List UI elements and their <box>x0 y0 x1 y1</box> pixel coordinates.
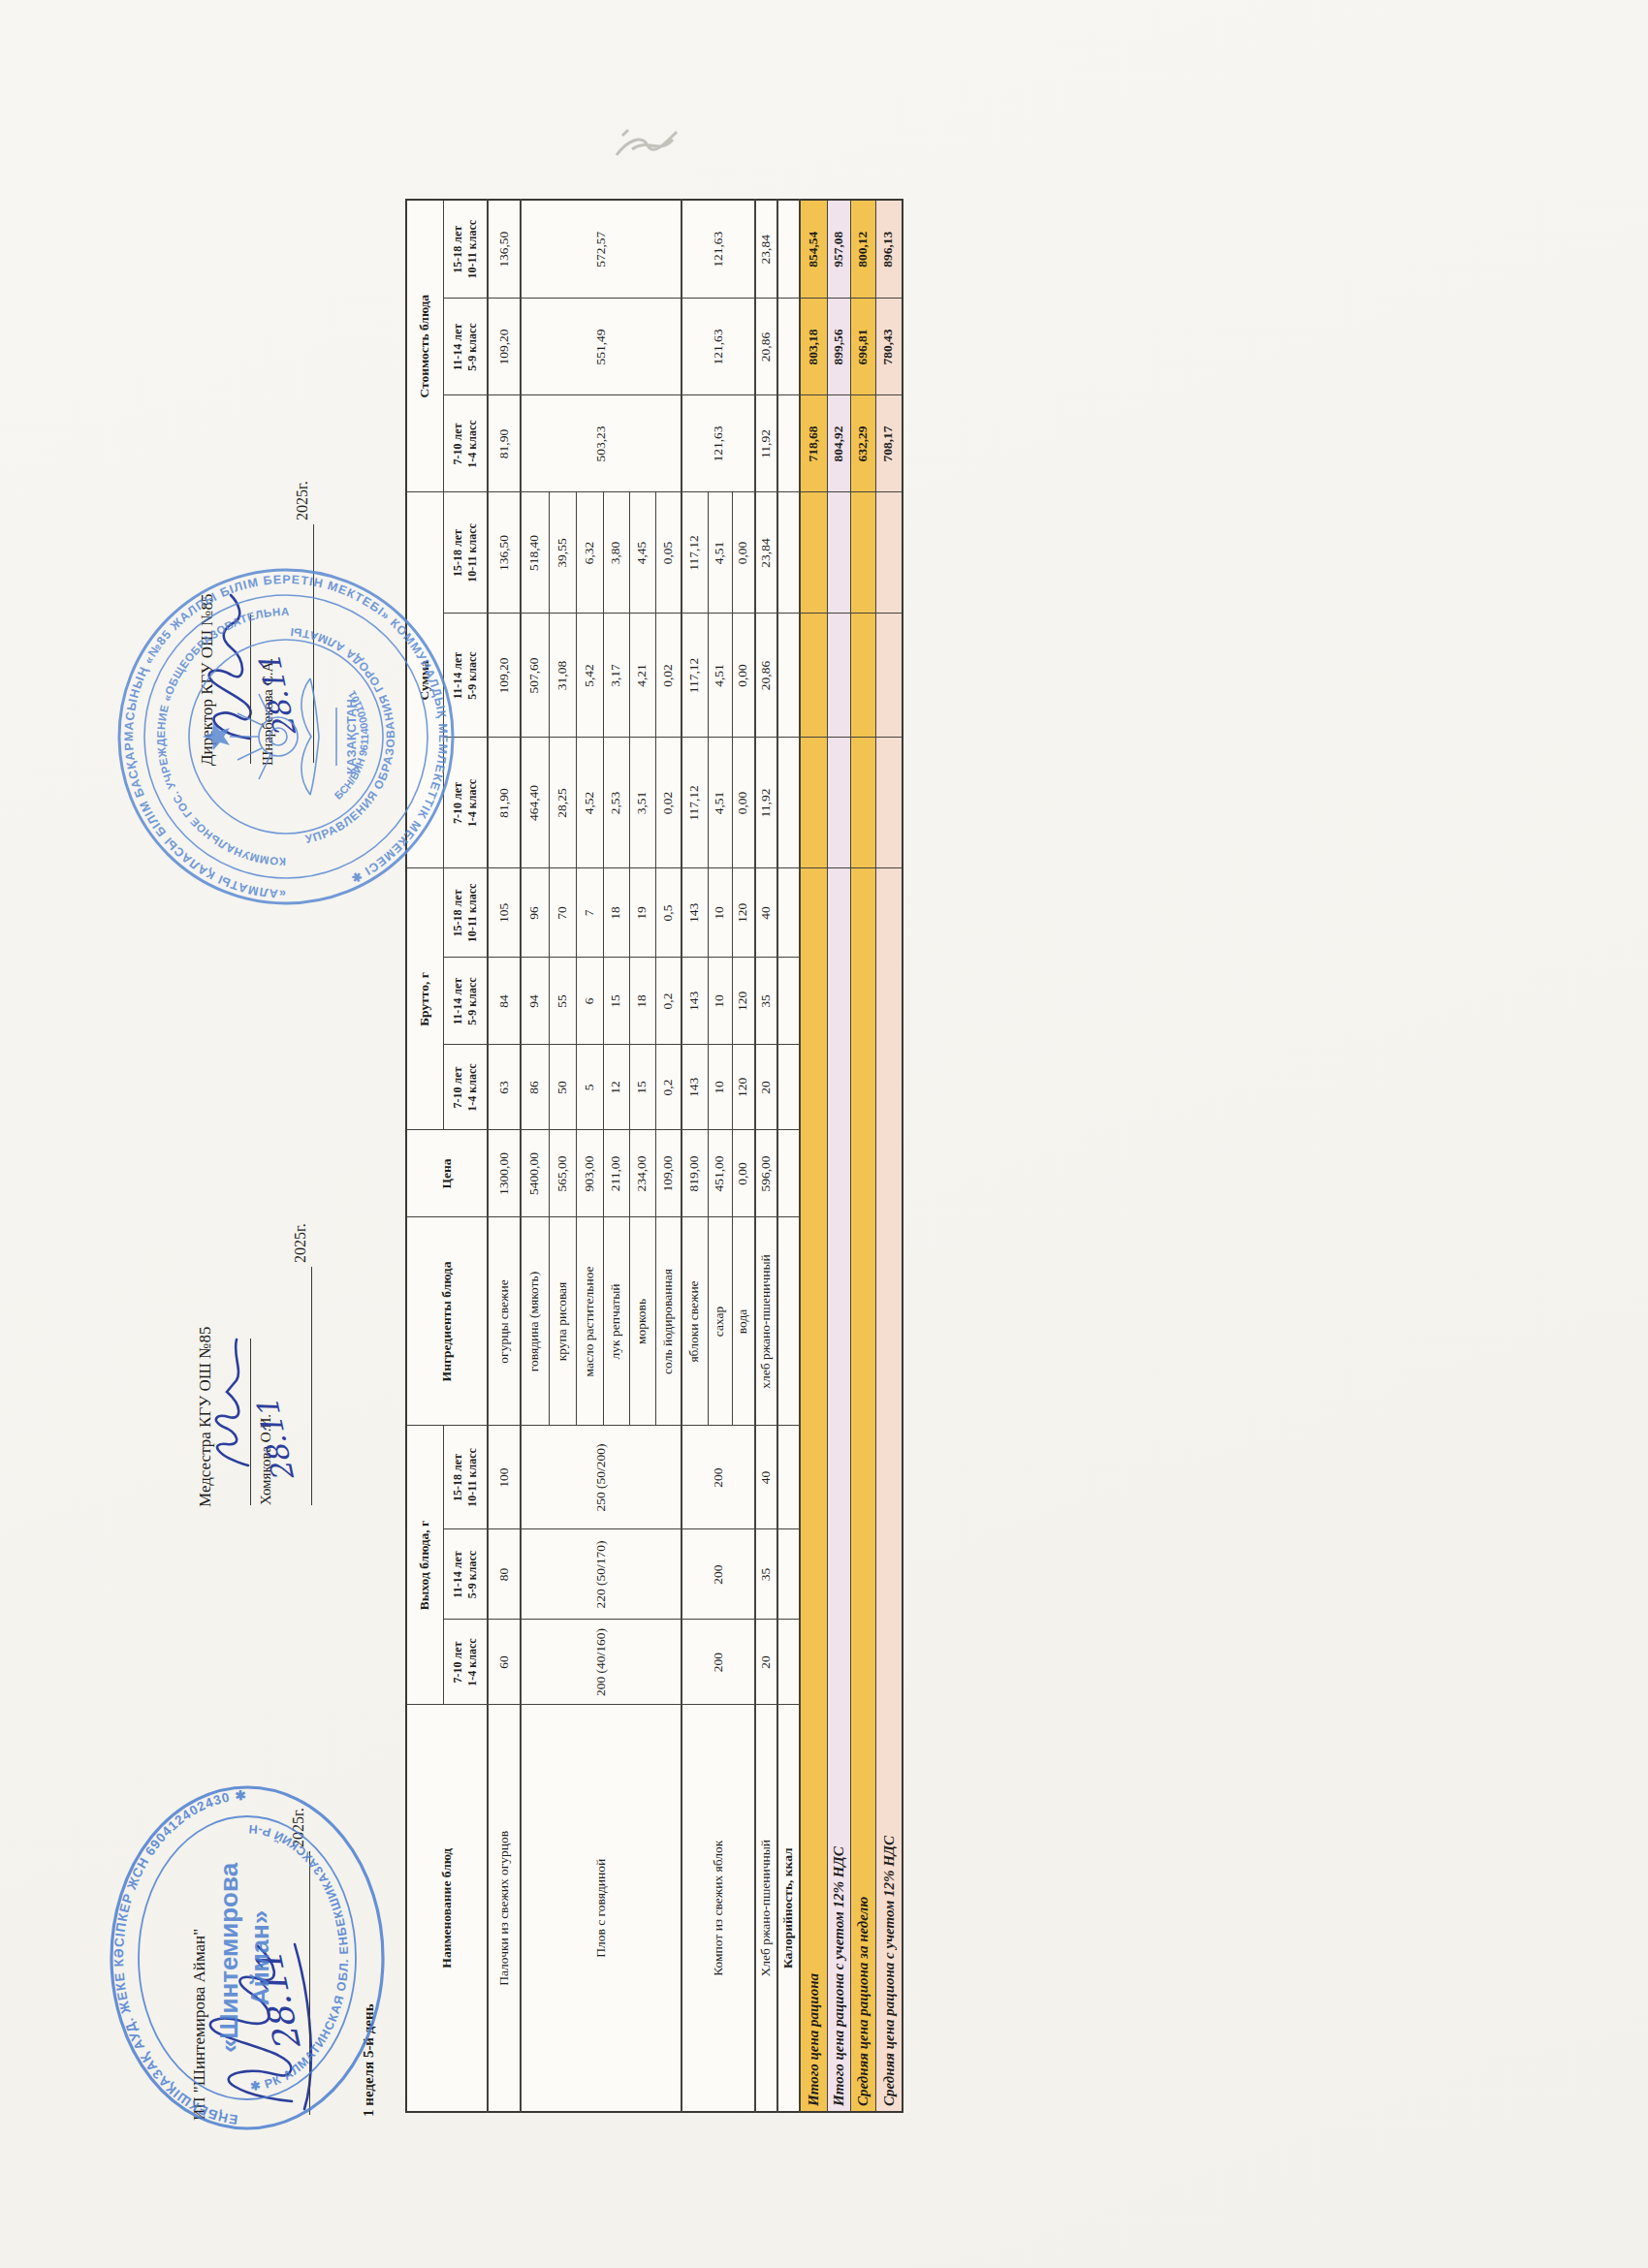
svg-text:«Шинтемирова: «Шинтемирова <box>214 1862 243 2053</box>
cell-empty <box>800 492 827 614</box>
header-out: Выход блюда, г <box>406 1426 443 1705</box>
row-plov-beef: Плов с говядиной 200 (40/160) 220 (50/17… <box>521 200 549 2112</box>
cell-out-3: 200 <box>681 1426 755 1529</box>
school-round-stamp: «АЛМАТЫ ҚАЛАСЫ БІЛІМ БАСҚАРМАСЫНЫҢ «№85 … <box>111 562 460 911</box>
cell-price: 211,00 <box>603 1130 629 1217</box>
cell-sum-2: 507,60 <box>521 614 549 738</box>
cell-sum-1: 0,02 <box>655 738 681 868</box>
cell-sum-1: 4,52 <box>576 738 603 868</box>
cell-sum-1: 2,53 <box>603 738 629 868</box>
cell-cost-3: 121,63 <box>681 200 755 299</box>
cell-empty <box>777 868 800 958</box>
cell-ingredient: яблоки свежие <box>681 1217 708 1426</box>
cell-empty <box>777 1620 800 1705</box>
cell-cost-3: 800,12 <box>850 200 875 299</box>
cell-sum-1: 464,40 <box>521 738 549 868</box>
cell-price: 0,00 <box>732 1130 755 1217</box>
header-age-out-2: 11-14 лет5-9 класс <box>443 1529 488 1620</box>
header-age-gross-1: 7-10 лет1-4 класс <box>443 1045 488 1130</box>
row-total-price-vat: Итого цена рациона с учетом 12% НДС 804,… <box>827 200 850 2112</box>
cell-empty <box>800 614 827 738</box>
cell-gross-3: 143 <box>681 868 708 958</box>
cell-sum-3: 6,32 <box>576 492 603 614</box>
cell-cost-3: 854,54 <box>800 200 827 299</box>
cell-empty <box>875 492 903 614</box>
cell-ingredient: сахар <box>708 1217 732 1426</box>
cell-gross-1: 120 <box>732 1045 755 1130</box>
cell-gross-2: 0,2 <box>655 958 681 1045</box>
cell-sum-3: 136,50 <box>488 492 521 614</box>
cell-price: 234,00 <box>629 1130 655 1217</box>
cell-ingredient: крупа рисовая <box>549 1217 576 1426</box>
cell-cost-1: 503,23 <box>521 395 681 492</box>
cell-cost-3: 572,57 <box>521 200 681 299</box>
cell-gross-1: 10 <box>708 1045 732 1130</box>
cell-cost-3: 23,84 <box>755 200 777 299</box>
cell-cost-2: 780,43 <box>875 299 903 395</box>
cell-sum-2: 31,08 <box>549 614 576 738</box>
cell-empty <box>777 200 800 299</box>
cell-gross-2: 55 <box>549 958 576 1045</box>
cell-dish: Хлеб ржано-пшеничный <box>755 1705 777 2112</box>
cell-dish: Плов с говядиной <box>521 1705 681 2112</box>
cell-cost-2: 696,81 <box>850 299 875 395</box>
cell-gross-3: 105 <box>488 868 521 958</box>
cell-sum-2: 0,02 <box>655 614 681 738</box>
cell-price: 451,00 <box>708 1130 732 1217</box>
cell-ingredient: огурцы свежие <box>488 1217 521 1426</box>
cell-dish: Палочки из свежих огурцов <box>488 1705 521 2112</box>
header-row-groups: Наименование блюд Выход блюда, г Ингреди… <box>406 200 443 2112</box>
cell-empty <box>777 1529 800 1620</box>
cell-cost-2: 551,49 <box>521 299 681 395</box>
cell-price: 903,00 <box>576 1130 603 1217</box>
cell-sum-2: 117,12 <box>681 614 708 738</box>
cell-dish: Калорийность, ккал <box>777 1705 800 2112</box>
cell-gross-1: 63 <box>488 1045 521 1130</box>
cell-sum-1: 3,51 <box>629 738 655 868</box>
row-average-week: Средняя цена рациона за неделю 632,29 69… <box>850 200 875 2112</box>
director-year: 2025г. <box>294 481 311 520</box>
cell-gross-3: 7 <box>576 868 603 958</box>
nurse-year: 2025г. <box>292 1223 309 1263</box>
ip-oval-stamp: ЕҢБЕКШІҚАЗАҚ АУД. ЖЕКЕ КӘСІПКЕР ЖСН 6904… <box>102 1779 393 2137</box>
cell-price: 5400,00 <box>521 1130 549 1217</box>
cell-cost-2: 20,86 <box>755 299 777 395</box>
cell-out-1: 200 (40/160) <box>521 1620 681 1705</box>
cell-gross-3: 10 <box>708 868 732 958</box>
cell-price: 109,00 <box>655 1130 681 1217</box>
header-age-out-3: 15-18 лет10-11 класс <box>443 1426 488 1529</box>
cell-gross-2: 15 <box>603 958 629 1045</box>
cell-ingredient: говядина (мякоть) <box>521 1217 549 1426</box>
cell-gross-1: 5 <box>576 1045 603 1130</box>
cell-gross-2: 84 <box>488 958 521 1045</box>
cell-sum-2: 5,42 <box>576 614 603 738</box>
cell-cost-1: 632,29 <box>850 395 875 492</box>
cell-price: 1300,00 <box>488 1130 521 1217</box>
cell-cost-3: 957,08 <box>827 200 850 299</box>
nurse-year-line <box>311 1267 312 1505</box>
cell-cost-1: 121,63 <box>681 395 755 492</box>
cell-sum-2: 4,51 <box>708 614 732 738</box>
cell-ingredient: лук репчатый <box>603 1217 629 1426</box>
cell-gross-1: 86 <box>521 1045 549 1130</box>
cell-price: 819,00 <box>681 1130 708 1217</box>
cell-sum-3: 0,05 <box>655 492 681 614</box>
cell-empty <box>777 1426 800 1529</box>
cell-ingredient: вода <box>732 1217 755 1426</box>
total-label: Средняя цена рациона за неделю <box>850 868 875 2112</box>
cell-empty <box>777 1130 800 1217</box>
cell-sum-2: 109,20 <box>488 614 521 738</box>
cell-cost-1: 708,17 <box>875 395 903 492</box>
emblem-icon <box>230 678 336 795</box>
cell-empty <box>777 1217 800 1426</box>
header-age-cost-3: 15-18 лет10-11 класс <box>443 200 488 299</box>
cell-sum-3: 0,00 <box>732 492 755 614</box>
cell-sum-1: 4,51 <box>708 738 732 868</box>
cell-gross-3: 0,5 <box>655 868 681 958</box>
cell-sum-3: 518,40 <box>521 492 549 614</box>
cell-empty <box>827 492 850 614</box>
cell-empty <box>777 299 800 395</box>
cell-empty <box>777 614 800 738</box>
row-total-price: Итого цена рациона 718,68 803,18 854,54 <box>800 200 827 2112</box>
cell-empty <box>827 738 850 868</box>
cell-out-3: 250 (50/200) <box>521 1426 681 1529</box>
rotated-content: 1 неделя 5-й день Наименование блюд Выхо… <box>405 201 909 2113</box>
cell-out-2: 35 <box>755 1529 777 1620</box>
scanned-page: 1 неделя 5-й день Наименование блюд Выхо… <box>0 0 1648 2268</box>
cell-cost-1: 804,92 <box>827 395 850 492</box>
cell-sum-3: 4,51 <box>708 492 732 614</box>
cell-price: 565,00 <box>549 1130 576 1217</box>
cell-empty <box>777 492 800 614</box>
cell-ingredient: морковь <box>629 1217 655 1426</box>
cell-ingredient: масло растительное <box>576 1217 603 1426</box>
cell-sum-1: 0,00 <box>732 738 755 868</box>
row-calories: Калорийность, ккал <box>777 200 800 2112</box>
cell-sum-2: 3,17 <box>603 614 629 738</box>
cell-cost-3: 896,13 <box>875 200 903 299</box>
cell-empty <box>850 738 875 868</box>
cell-sum-2: 0,00 <box>732 614 755 738</box>
header-age-gross-2: 11-14 лет5-9 класс <box>443 958 488 1045</box>
cell-empty <box>875 614 903 738</box>
cell-gross-2: 94 <box>521 958 549 1045</box>
cell-empty <box>800 738 827 868</box>
cell-cost-3: 136,50 <box>488 200 521 299</box>
cell-empty <box>850 492 875 614</box>
cell-sum-2: 20,86 <box>755 614 777 738</box>
cell-price: 596,00 <box>755 1130 777 1217</box>
cell-sum-1: 117,12 <box>681 738 708 868</box>
cell-cost-1: 11,92 <box>755 395 777 492</box>
cell-sum-2: 4,21 <box>629 614 655 738</box>
cell-gross-3: 96 <box>521 868 549 958</box>
cell-empty <box>850 614 875 738</box>
cell-cost-1: 81,90 <box>488 395 521 492</box>
cell-cost-2: 803,18 <box>800 299 827 395</box>
header-cost: Стоимость блюда <box>406 200 443 492</box>
row-average-week-vat: Средняя цена рациона с учетом 12% НДС 70… <box>875 200 903 2112</box>
total-label: Итого цена рациона с учетом 12% НДС <box>827 868 850 2112</box>
header-age-cost-1: 7-10 лет1-4 класс <box>443 395 488 492</box>
cell-sum-3: 4,45 <box>629 492 655 614</box>
nurse-sign-line <box>250 1339 251 1505</box>
cell-out-1: 20 <box>755 1620 777 1705</box>
cell-sum-1: 81,90 <box>488 738 521 868</box>
cell-gross-1: 0,2 <box>655 1045 681 1130</box>
cell-empty <box>777 738 800 868</box>
cell-cost-1: 718,68 <box>800 395 827 492</box>
cell-empty <box>777 1045 800 1130</box>
cell-ingredient: хлеб ржано-пшеничный <box>755 1217 777 1426</box>
pencil-smudge <box>609 107 701 184</box>
svg-text:«АЛМАТЫ ҚАЛАСЫ БІЛІМ БАСҚАРМАС: «АЛМАТЫ ҚАЛАСЫ БІЛІМ БАСҚАРМАСЫНЫҢ «№85 … <box>122 573 450 900</box>
cell-empty <box>875 738 903 868</box>
svg-text:Айман»: Айман» <box>245 1910 274 2005</box>
header-price: Цена <box>406 1130 488 1217</box>
cell-out-3: 100 <box>488 1426 521 1529</box>
cell-out-2: 220 (50/170) <box>521 1529 681 1620</box>
cell-gross-2: 143 <box>681 958 708 1045</box>
cell-out-2: 80 <box>488 1529 521 1620</box>
cell-gross-1: 143 <box>681 1045 708 1130</box>
cell-gross-1: 15 <box>629 1045 655 1130</box>
header-name: Наименование блюд <box>406 1705 488 2112</box>
cell-gross-3: 70 <box>549 868 576 958</box>
header-age-cost-2: 11-14 лет5-9 класс <box>443 299 488 395</box>
cell-out-1: 200 <box>681 1620 755 1705</box>
cell-gross-3: 40 <box>755 868 777 958</box>
cell-out-3: 40 <box>755 1426 777 1529</box>
total-label: Итого цена рациона <box>800 868 827 2112</box>
row-bread: Хлеб ржано-пшеничный 20 35 40 хлеб ржано… <box>755 200 777 2112</box>
cell-out-2: 200 <box>681 1529 755 1620</box>
row-compote: Компот из свежих яблок 200 200 200 яблок… <box>681 200 708 2112</box>
cell-cost-2: 121,63 <box>681 299 755 395</box>
cell-gross-1: 12 <box>603 1045 629 1130</box>
cell-sum-3: 23,84 <box>755 492 777 614</box>
cell-ingredient: соль йодированная <box>655 1217 681 1426</box>
cell-cost-2: 109,20 <box>488 299 521 395</box>
menu-table: Наименование блюд Выход блюда, г Ингреди… <box>405 199 903 2113</box>
star-icon <box>203 723 230 750</box>
cell-gross-3: 120 <box>732 868 755 958</box>
total-label: Средняя цена рациона с учетом 12% НДС <box>875 868 903 2112</box>
cell-gross-2: 35 <box>755 958 777 1045</box>
cell-sum-3: 117,12 <box>681 492 708 614</box>
header-age-out-1: 7-10 лет1-4 класс <box>443 1620 488 1705</box>
cell-gross-1: 50 <box>549 1045 576 1130</box>
cell-dish: Компот из свежих яблок <box>681 1705 755 2112</box>
svg-text:ҚАЗАҚСТАН: ҚАЗАҚСТАН <box>344 699 359 774</box>
cell-gross-3: 18 <box>603 868 629 958</box>
cell-gross-2: 6 <box>576 958 603 1045</box>
cell-sum-3: 3,80 <box>603 492 629 614</box>
cell-empty <box>777 395 800 492</box>
cell-empty <box>777 958 800 1045</box>
cell-gross-2: 10 <box>708 958 732 1045</box>
row-cucumber-sticks: Палочки из свежих огурцов 60 80 100 огур… <box>488 200 521 2112</box>
cell-empty <box>827 614 850 738</box>
cell-gross-1: 20 <box>755 1045 777 1130</box>
header-ingredients: Ингредиенты блюда <box>406 1217 488 1426</box>
cell-out-1: 60 <box>488 1620 521 1705</box>
cell-sum-1: 11,92 <box>755 738 777 868</box>
cell-sum-1: 28,25 <box>549 738 576 868</box>
cell-cost-2: 899,56 <box>827 299 850 395</box>
cell-gross-3: 19 <box>629 868 655 958</box>
cell-gross-2: 18 <box>629 958 655 1045</box>
cell-sum-3: 39,55 <box>549 492 576 614</box>
cell-gross-2: 120 <box>732 958 755 1045</box>
